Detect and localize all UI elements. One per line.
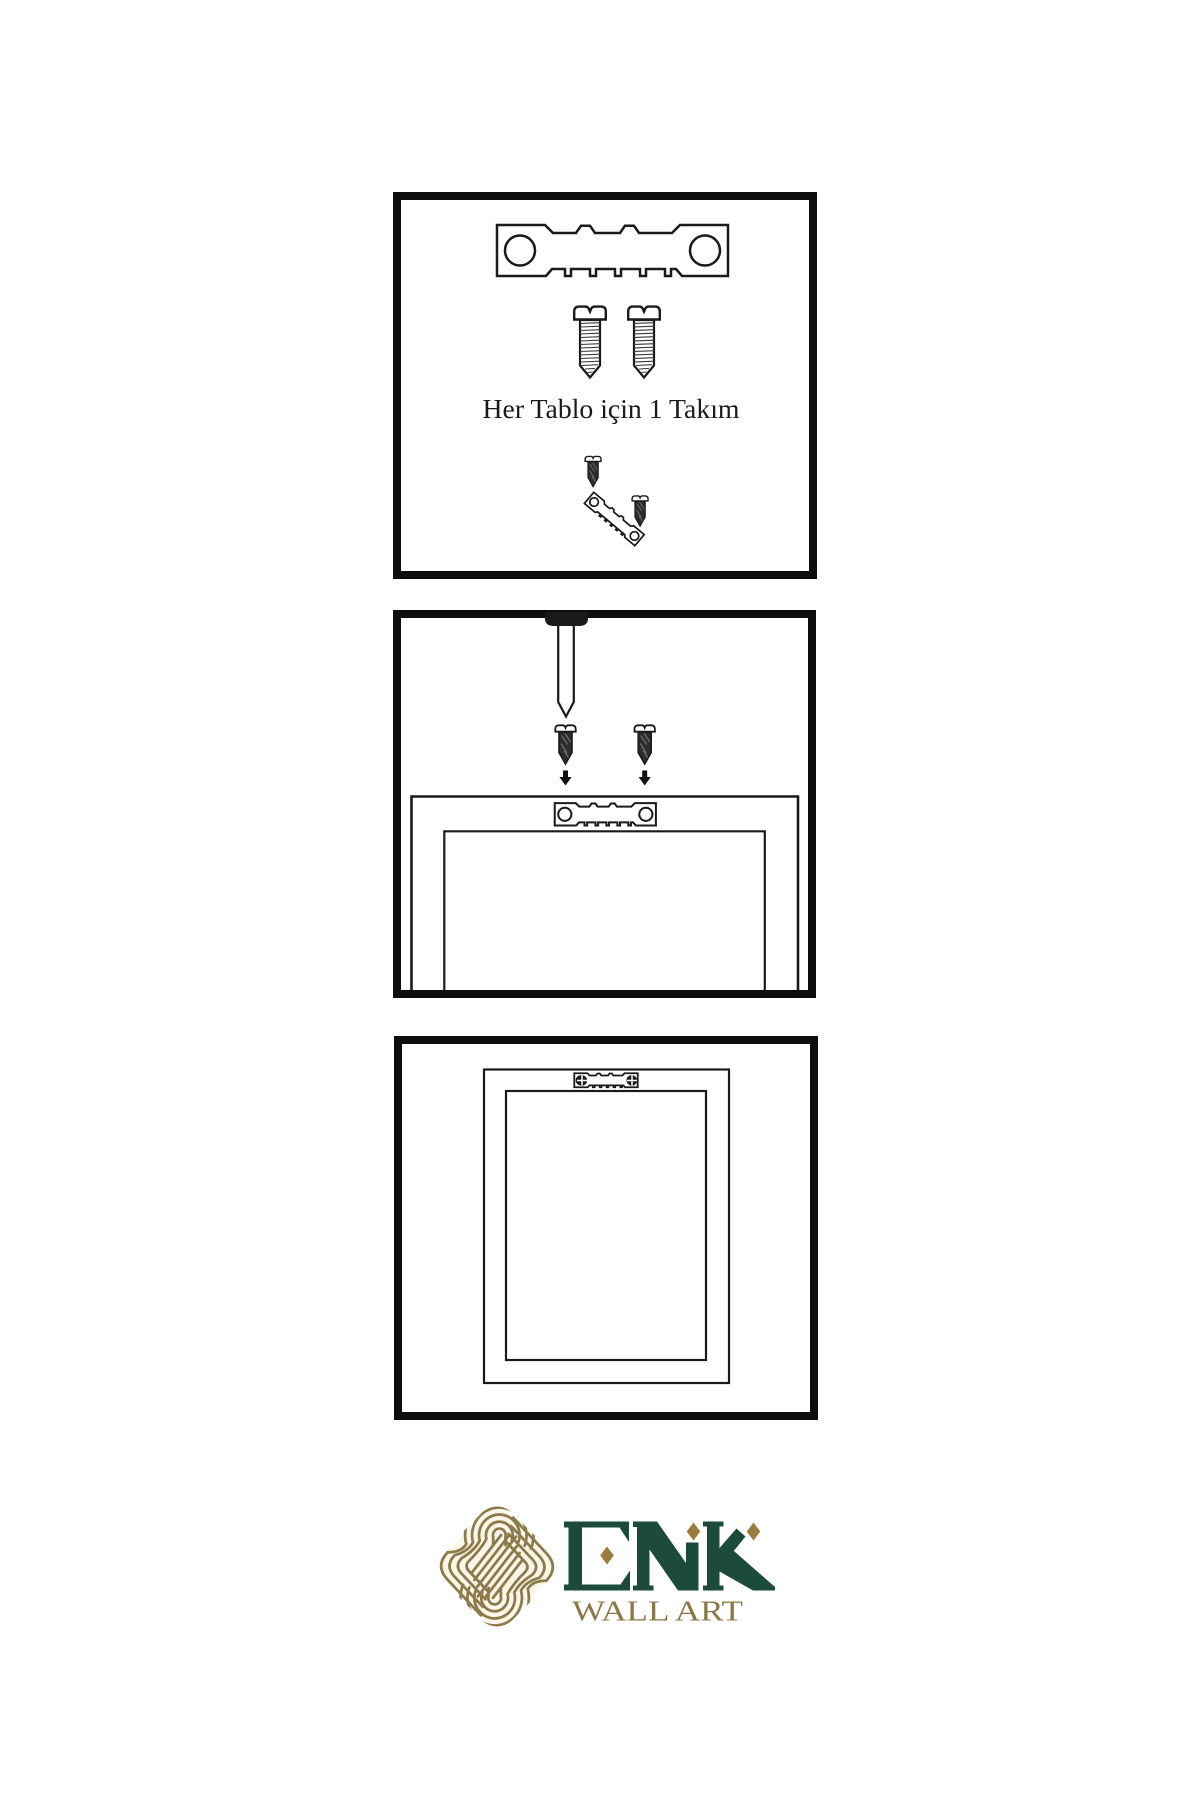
svg-text:Her Tablo için 1 Takım: Her Tablo için 1 Takım xyxy=(483,394,740,424)
svg-text:WALL ART: WALL ART xyxy=(572,1596,743,1628)
